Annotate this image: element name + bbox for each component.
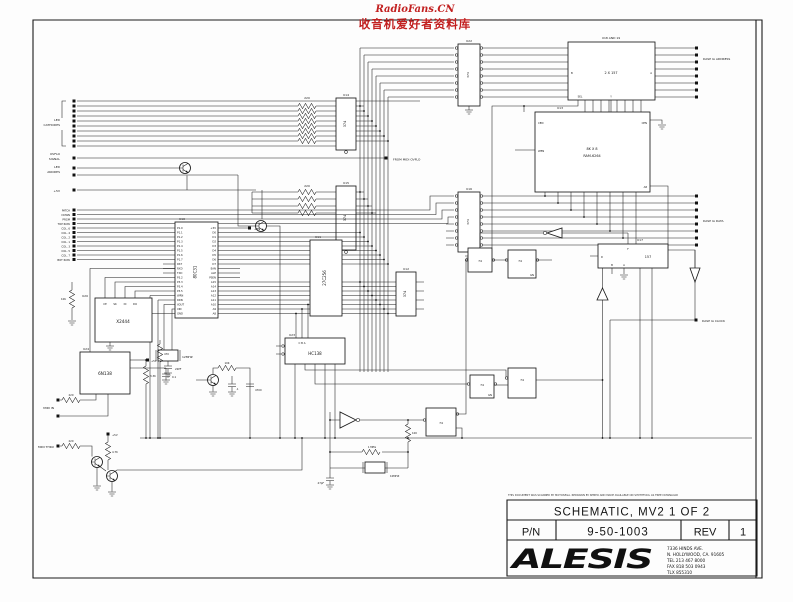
resistor-value: 470 xyxy=(164,352,169,356)
svg-text:TEL 213 467 8000: TEL 213 467 8000 xyxy=(666,558,706,563)
svg-text:A9: A9 xyxy=(213,307,217,311)
ic-ff5: 74 GN xyxy=(467,375,508,398)
row-label: PRGM xyxy=(62,218,70,222)
svg-text:A12: A12 xyxy=(211,294,216,298)
pn-value: 9-50-1003 xyxy=(587,527,648,539)
ic-ff6: 74 xyxy=(505,368,602,398)
left-labels: LED CATHODES OVFLO SIGNAL LED ANODES +5V… xyxy=(44,101,71,262)
pin-label: CE xyxy=(103,302,107,306)
ic-ff4: 74 GN xyxy=(492,250,552,278)
svg-text:P1.1: P1.1 xyxy=(177,231,183,235)
pin-label: WEN xyxy=(538,149,544,153)
title-text: SCHEMATIC, MV2 1 OF 2 xyxy=(554,507,710,519)
plus5v-label: +5V xyxy=(254,227,261,231)
pin-label: CEN xyxy=(538,121,543,125)
pin-label: A8 xyxy=(644,185,648,189)
ic-part: 374 xyxy=(466,219,470,225)
svg-text:D1: D1 xyxy=(212,235,216,239)
led-cathodes-label: CATHODES xyxy=(44,123,61,127)
svg-text:WRN: WRN xyxy=(177,294,183,298)
left-misc-resistor: 10K xyxy=(61,282,76,325)
crystal-value: 12MHZ xyxy=(182,355,193,359)
ic-part: 80C31 xyxy=(193,265,198,278)
svg-text:A13: A13 xyxy=(211,289,216,293)
svg-text:FAX 818 503 0943: FAX 818 503 0943 xyxy=(667,564,706,569)
svg-text:A15: A15 xyxy=(211,280,216,284)
resistor-value: 220 xyxy=(69,439,74,443)
left-pads xyxy=(73,100,76,262)
resistor-value: 100 xyxy=(412,431,417,435)
svg-text:N. HOLLYWOOD, CA. 91605: N. HOLLYWOOD, CA. 91605 xyxy=(667,552,725,557)
title-block: THIS DOCUMENT WAS SCANNED BY MOTOSEGA. R… xyxy=(507,493,757,576)
alesis-logo: ALESIS xyxy=(509,544,652,575)
svg-text:D0: D0 xyxy=(212,231,216,235)
pn-label: P/N xyxy=(522,527,540,539)
ic-part: 2 X 157 xyxy=(604,71,617,75)
pin-label: B xyxy=(611,263,613,267)
ic-part: 74 xyxy=(439,421,443,425)
plus5v-label: +5V xyxy=(112,433,118,437)
pin-label: DI xyxy=(124,302,127,306)
ic-ref: U15 xyxy=(343,181,349,185)
ic-part: 157 xyxy=(645,255,651,259)
svg-text:P1.0: P1.0 xyxy=(177,226,183,230)
ovflo-label: SIGNAL xyxy=(49,157,60,161)
ic-decoder: U23 HC138 C B A xyxy=(276,304,508,438)
plus5v-label: +5V xyxy=(54,189,61,193)
pin-label: D xyxy=(601,255,603,259)
svg-text:P1.2: P1.2 xyxy=(177,235,183,239)
resistor-value: 220 xyxy=(304,184,310,188)
ic-ref: U10 xyxy=(179,217,185,221)
svg-text:A10: A10 xyxy=(211,303,216,307)
watermark-line2: 收音机爱好者资料库 xyxy=(359,17,472,31)
midi-thru-circuit: MIDI THRU 220 +5V 4.7K xyxy=(38,433,302,497)
ic-ff3: 74 xyxy=(465,248,495,272)
ic-ref: U22 xyxy=(466,39,472,43)
svg-text:7336 HINDS AVE.: 7336 HINDS AVE. xyxy=(667,546,703,551)
address-block: 7336 HINDS AVE. N. HOLLYWOOD, CA. 91605 … xyxy=(666,546,725,575)
svg-text:P1.4: P1.4 xyxy=(177,244,183,248)
row-label: COL. 7 xyxy=(61,254,70,258)
svg-text:P3.2: P3.2 xyxy=(177,276,183,280)
cap-value: 4700 xyxy=(255,388,262,392)
ic-part: 374 xyxy=(466,72,470,78)
midi-in-port: MIDI IN 220 xyxy=(43,393,108,418)
resistor-value: 220 xyxy=(69,393,74,397)
ic-ref: U24 xyxy=(83,347,89,351)
pin-label: B xyxy=(571,71,573,75)
ic-ref: U12 xyxy=(403,267,409,271)
midi-in-label: MIDI IN xyxy=(43,406,54,410)
ic-part: 8K X 8 xyxy=(586,147,597,151)
rev-value: 1 xyxy=(740,527,746,539)
cap-value: 0.1 xyxy=(172,375,176,379)
pin-label: DO xyxy=(133,302,137,306)
dasp-clock-port: DASP IA CLOCK xyxy=(610,319,726,439)
schematic-sheet: RadioFans.CN 收音机爱好者资料库 LED CATHODES OVFL… xyxy=(0,0,793,602)
from-midi-net: FROM MIDI OVFLO xyxy=(385,157,421,162)
disclaimer-text: THIS DOCUMENT WAS SCANNED BY MOTOSEGA. R… xyxy=(508,493,678,497)
inverter-up xyxy=(597,268,608,438)
svg-text:D7: D7 xyxy=(212,262,216,266)
svg-text:D4: D4 xyxy=(212,249,216,253)
ic-part: 74 xyxy=(480,383,484,387)
plus5v-label: +5V xyxy=(151,359,157,363)
dasp-address-port: DASP IA ADDRESS xyxy=(695,47,730,99)
row-label: TOP ROW xyxy=(58,222,71,226)
svg-text:RDN: RDN xyxy=(177,298,183,302)
svg-text:P1.5: P1.5 xyxy=(177,249,183,253)
pin-label: SK xyxy=(113,302,117,306)
ic-part: 6N138 xyxy=(98,371,112,376)
svg-text:D6: D6 xyxy=(212,258,216,262)
svg-text:A8: A8 xyxy=(213,312,217,316)
dasp-data-label: DASP IA DATA xyxy=(703,219,725,223)
ic-part: 374 xyxy=(403,291,407,297)
led-anodes-label: ANODES xyxy=(47,170,60,174)
row-label: COL. 3 xyxy=(61,245,70,249)
led-bus-wires xyxy=(77,101,420,226)
ic-part: 374 xyxy=(343,215,347,221)
ic-ref: U18 AND 19 xyxy=(602,36,620,40)
svg-text:P3.5: P3.5 xyxy=(177,289,183,293)
resistor-value: 3.3K xyxy=(150,374,156,378)
cap-value: .1 xyxy=(236,387,239,391)
svg-text:P3.4: P3.4 xyxy=(177,285,183,289)
from-midi-label: FROM MIDI OVFLO xyxy=(393,158,421,162)
ic-mcu: U10 80C31 P1.0P1.1 P1.2P1.3 P1.4P1.5 P1.… xyxy=(175,217,218,318)
svg-text:P3.3: P3.3 xyxy=(177,280,183,284)
row-label: COL. 2 xyxy=(61,236,70,240)
svg-text:P1.7: P1.7 xyxy=(177,258,183,262)
crystal-value: 10MHZ xyxy=(390,474,399,478)
ic-ref: U13 xyxy=(557,106,563,110)
ic-ref: U14 xyxy=(343,93,349,97)
ic-ref: U23 xyxy=(289,333,295,337)
ic-part: 27C256 xyxy=(322,270,327,286)
svg-text:RXD: RXD xyxy=(177,267,183,271)
svg-text:P1.6: P1.6 xyxy=(177,253,183,257)
svg-text:XOUT: XOUT xyxy=(177,303,185,307)
resistor-value: 1 MEG xyxy=(368,445,376,449)
cap-value: 22PF xyxy=(175,367,182,371)
ic-part: X2444 xyxy=(116,319,130,324)
pin-label: GN xyxy=(488,393,492,397)
pin-label: SEL xyxy=(578,95,583,99)
q5-circuit: 10K .1 4700 xyxy=(196,361,262,438)
ic-u17: U17 157 F D B A xyxy=(590,238,668,438)
midi-thru-label: MIDI THRU xyxy=(38,445,54,449)
ic-ram: U13 8K X 8 RAM-6264 CEN CEN WEN A8 xyxy=(515,105,695,268)
ic-ref: U16 xyxy=(466,187,472,191)
svg-text:A14: A14 xyxy=(211,285,216,289)
ic-part: 74 xyxy=(478,259,482,263)
pin-label: A xyxy=(650,71,652,75)
ic-ref: U11 xyxy=(315,235,321,239)
row-label: BOT ROW xyxy=(57,258,70,262)
watermark: RadioFans.CN 收音机爱好者资料库 xyxy=(359,4,472,31)
svg-text:XIN: XIN xyxy=(177,307,182,311)
ovflo-label: OVFLO xyxy=(50,152,61,156)
rev-label: REV xyxy=(694,527,717,539)
inverter-down-clock xyxy=(690,250,700,320)
svg-text:+5V: +5V xyxy=(210,226,216,230)
row-label: COL. 6 xyxy=(61,227,70,231)
svg-text:A11: A11 xyxy=(211,298,216,302)
svg-text:D5: D5 xyxy=(212,253,216,257)
ic-part: 74 xyxy=(520,378,524,382)
led-cathodes-label: LED xyxy=(54,118,61,122)
ic-ref: U17 xyxy=(637,238,643,242)
ic-ref: U20 xyxy=(82,294,88,298)
resistor-pack-1: 220 xyxy=(298,96,316,144)
ic-part: HC138 xyxy=(308,351,322,356)
row-label: DOWN xyxy=(61,213,70,217)
ic-part: 74 xyxy=(518,259,522,263)
ic-part: RAM-6264 xyxy=(583,154,600,158)
pin-label: CEN xyxy=(642,121,647,125)
row-label: COL. 4 xyxy=(61,231,70,235)
svg-text:PSEN: PSEN xyxy=(209,276,216,280)
svg-text:TXD: TXD xyxy=(177,271,182,275)
ic-u22: U22 374 xyxy=(455,39,568,114)
svg-text:P1.3: P1.3 xyxy=(177,240,183,244)
svg-text:D2: D2 xyxy=(212,240,216,244)
dasp-data-port: DASP IA DATA xyxy=(695,195,725,247)
row-label: COL. 1 xyxy=(61,240,70,244)
pin-label: GN xyxy=(530,273,534,277)
dasp-clock-label: DASP IA CLOCK xyxy=(702,319,726,323)
resistor-value: 4.7K xyxy=(112,450,118,454)
ic-part: 374 xyxy=(343,121,347,127)
pin-label: C B A xyxy=(298,341,305,345)
resistor-value: 10K xyxy=(61,297,66,301)
row-label: COL. 5 xyxy=(61,249,70,253)
svg-text:GND: GND xyxy=(177,312,183,316)
resistor-pack-2: 220 xyxy=(252,184,336,216)
ic-u12: U12 374 xyxy=(396,267,424,316)
led-anodes-label: LED xyxy=(54,165,61,169)
cap-value: 47pF xyxy=(318,481,325,485)
resistor-value: 10K xyxy=(224,361,229,365)
svg-text:TLX 855310: TLX 855310 xyxy=(666,570,692,575)
watermark-line1: RadioFans.CN xyxy=(375,4,456,15)
svg-text:RST: RST xyxy=(177,262,182,266)
dasp-address-label: DASP IA ADDRESS xyxy=(703,57,730,61)
svg-text:EAN: EAN xyxy=(211,267,216,271)
resistor-value: 220 xyxy=(304,96,310,100)
pin-label: A xyxy=(623,263,625,267)
bottom-bus xyxy=(140,437,752,439)
svg-text:D3: D3 xyxy=(212,244,216,248)
svg-text:ALE: ALE xyxy=(211,271,216,275)
row-label: PATCH xyxy=(62,209,70,213)
